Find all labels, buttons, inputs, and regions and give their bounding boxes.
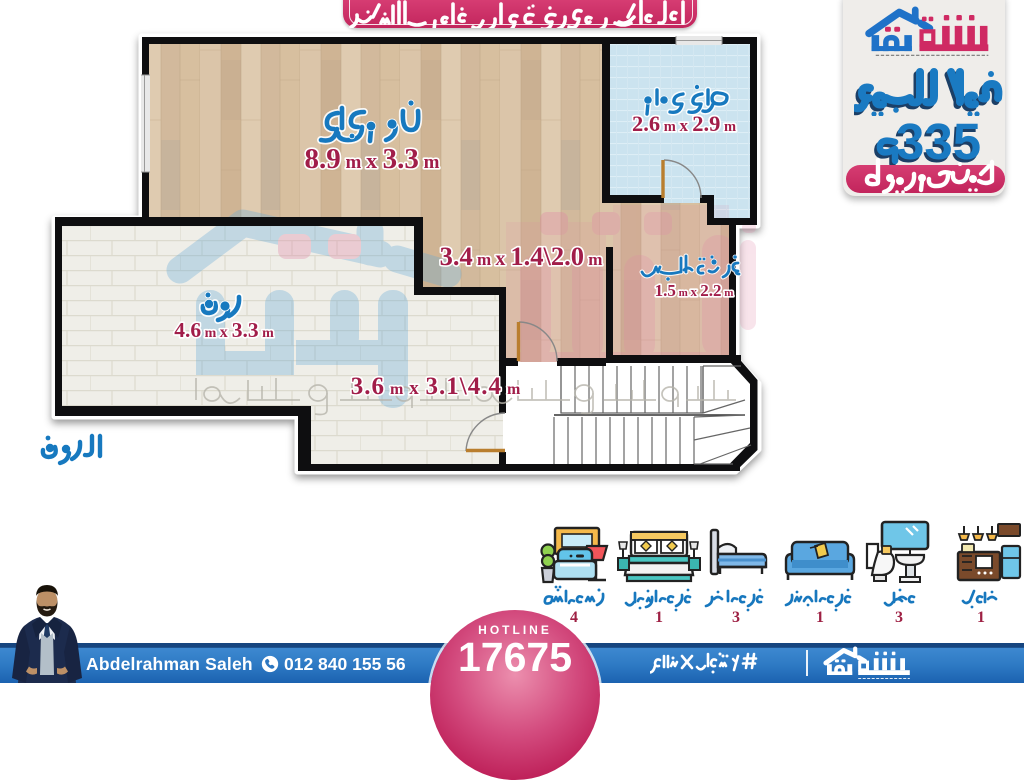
svg-text:3: 3 — [895, 609, 903, 626]
svg-text:1: 1 — [816, 609, 824, 626]
svg-text:3.6 m x 3.1\4.4 m: 3.6 m x 3.1\4.4 m — [351, 373, 522, 400]
svg-text:1: 1 — [655, 609, 663, 626]
svg-text:3: 3 — [732, 609, 740, 626]
svg-text:3.4 m x 1.4\2.0 m: 3.4 m x 1.4\2.0 m — [440, 241, 603, 271]
svg-text:1: 1 — [977, 609, 985, 626]
